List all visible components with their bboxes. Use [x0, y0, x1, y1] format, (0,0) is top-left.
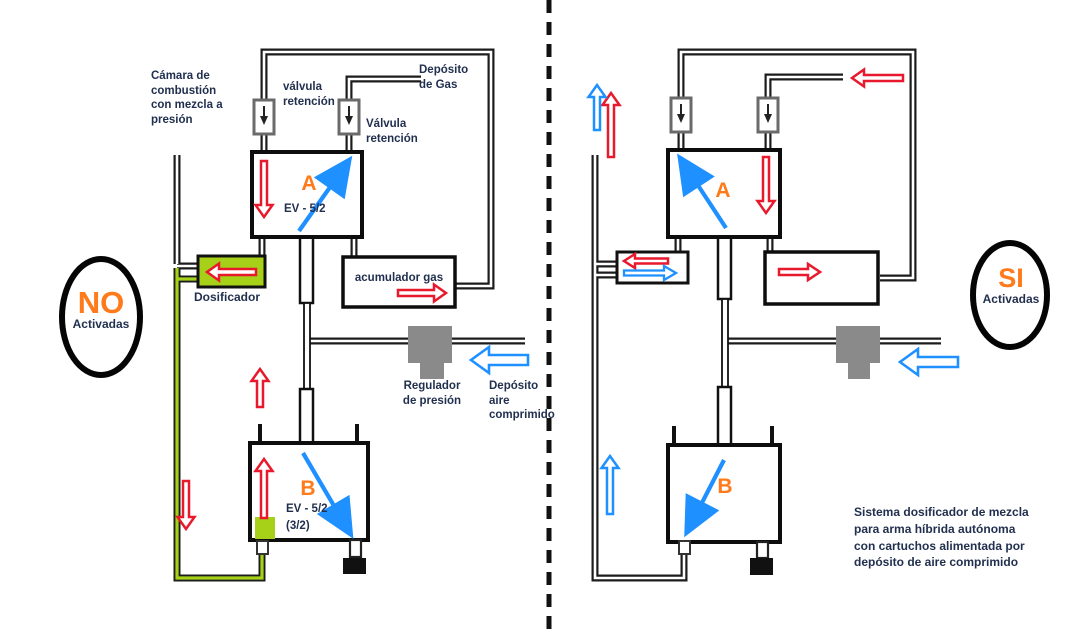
- blue-arrow-up-icon: [602, 456, 619, 514]
- valve-a-letter-right: A: [706, 180, 740, 201]
- check-valve-icon: [671, 98, 691, 132]
- check-valve-icon: [758, 98, 778, 132]
- valve-b-green-state: [255, 517, 275, 539]
- no-activadas-badge: NO Activadas: [60, 288, 142, 330]
- pipe: [768, 77, 843, 98]
- blue-hollow-arrow-left-icon: [471, 347, 528, 373]
- valve-b-letter-right: B: [708, 476, 742, 497]
- right-circuit: [589, 52, 1048, 578]
- regulator-label: Regulador de presión: [390, 379, 474, 408]
- red-arrow-up-icon: [603, 93, 620, 157]
- doser-box: [617, 252, 688, 283]
- exhaust-cap: [750, 558, 773, 575]
- check-valve-icon: [339, 100, 359, 134]
- accumulator-label: acumulador gas: [345, 271, 453, 286]
- si-activadas-badge: SI Activadas: [972, 266, 1050, 305]
- gas-accumulator-box: [765, 252, 878, 304]
- blue-arrow-up-icon: [589, 85, 606, 130]
- combustion-chamber-label: Cámara de combustión con mezcla a presió…: [151, 69, 259, 128]
- air-tank-label: Depósito aire comprimido: [489, 379, 555, 423]
- no-sub-text: Activadas: [73, 318, 130, 330]
- exhaust-cap: [343, 558, 366, 574]
- pipe: [349, 79, 421, 100]
- valve-b-type-label: EV - 5/2: [286, 503, 328, 515]
- pneumatic-schematic: Cámara de combustión con mezcla a presió…: [0, 0, 1072, 637]
- valve-a-type-label: EV - 5/2: [284, 203, 326, 215]
- red-arrow-left-icon: [852, 70, 903, 87]
- si-sub-text: Activadas: [983, 293, 1040, 305]
- doser-label: Dosificador: [194, 290, 260, 305]
- valve-b-subtype-label: (3/2): [286, 520, 310, 532]
- system-caption: Sistema dosificador de mezcla para arma …: [854, 504, 1064, 571]
- blue-hollow-arrow-left-icon: [900, 349, 958, 375]
- check-valve-label-1: válvula retención: [283, 80, 335, 109]
- gas-tank-label: Depósito de Gas: [419, 63, 468, 92]
- valve-a-letter: A: [292, 173, 326, 194]
- pressure-regulator-block: [408, 326, 452, 379]
- red-arrow-up-icon: [252, 369, 269, 407]
- valve-b-letter: B: [291, 478, 325, 499]
- si-text: SI: [998, 266, 1024, 292]
- check-valve-label-2: Válvula retención: [366, 117, 418, 146]
- no-text: NO: [78, 288, 125, 317]
- pressure-regulator-block: [836, 326, 880, 379]
